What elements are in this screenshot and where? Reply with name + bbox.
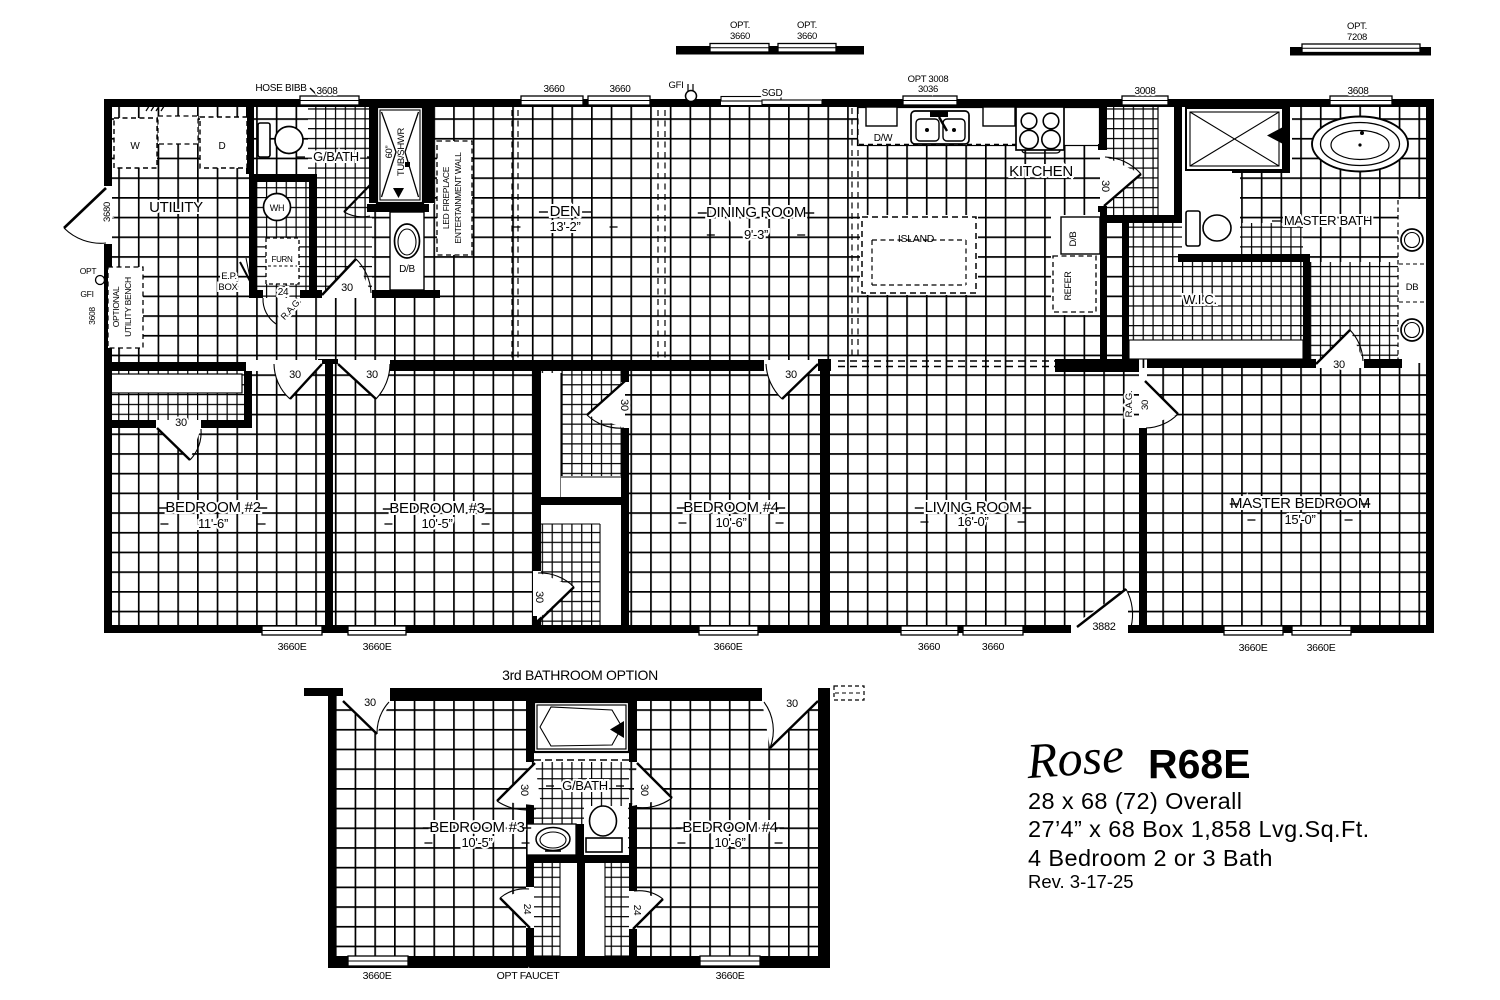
svg-text:3680: 3680 — [102, 202, 113, 222]
svg-text:3660: 3660 — [609, 84, 631, 95]
svg-text:3660: 3660 — [730, 31, 750, 42]
svg-text:G/BATH: G/BATH — [313, 149, 359, 164]
svg-text:3660: 3660 — [918, 641, 941, 653]
svg-text:BEDROOM #3: BEDROOM #3 — [429, 819, 524, 836]
svg-text:GFI: GFI — [669, 80, 684, 91]
svg-text:MASTER BEDROOM: MASTER BEDROOM — [1230, 495, 1370, 512]
svg-text:BEDROOM #4: BEDROOM #4 — [682, 819, 777, 836]
svg-text:30: 30 — [175, 417, 187, 429]
svg-text:3608: 3608 — [1347, 86, 1369, 97]
svg-text:OPTIONAL: OPTIONAL — [111, 286, 121, 327]
svg-text:30: 30 — [786, 698, 798, 710]
svg-text:OPT.: OPT. — [1347, 21, 1367, 32]
svg-text:3660E: 3660E — [363, 641, 392, 653]
svg-text:15'-0”: 15'-0” — [1284, 512, 1315, 527]
svg-text:R.A.G.: R.A.G. — [1124, 391, 1135, 418]
svg-text:W.I.C.: W.I.C. — [1183, 292, 1217, 307]
svg-text:30: 30 — [1140, 400, 1151, 410]
svg-text:3660E: 3660E — [363, 970, 392, 982]
svg-text:REFER: REFER — [1063, 271, 1073, 301]
svg-text:3660: 3660 — [797, 31, 817, 42]
svg-text:MASTER BATH: MASTER BATH — [1284, 213, 1372, 228]
svg-text:TUB/SHWR: TUB/SHWR — [396, 127, 407, 176]
svg-text:D/W: D/W — [874, 133, 893, 144]
svg-text:BOX: BOX — [218, 282, 238, 293]
svg-text:3660E: 3660E — [714, 641, 743, 653]
svg-text:3rd BATHROOM OPTION: 3rd BATHROOM OPTION — [502, 667, 658, 683]
svg-text:30: 30 — [785, 369, 797, 381]
svg-text:30: 30 — [533, 591, 545, 603]
svg-text:3660E: 3660E — [716, 970, 745, 982]
svg-text:Rev. 3-17-25: Rev. 3-17-25 — [1028, 871, 1134, 892]
svg-text:24: 24 — [278, 287, 289, 298]
svg-text:R68E: R68E — [1148, 741, 1251, 787]
svg-text:3660E: 3660E — [1307, 642, 1336, 654]
svg-text:7208: 7208 — [1347, 32, 1367, 43]
svg-text:30: 30 — [364, 697, 376, 709]
svg-text:60”: 60” — [384, 145, 395, 158]
svg-text:BEDROOM #3: BEDROOM #3 — [389, 500, 484, 517]
svg-text:KITCHEN: KITCHEN — [1009, 163, 1073, 180]
svg-text:3882: 3882 — [1092, 621, 1115, 633]
svg-text:4 Bedroom 2 or 3 Bath: 4 Bedroom 2 or 3 Bath — [1028, 845, 1273, 871]
svg-text:3608: 3608 — [316, 86, 338, 97]
svg-text:BEDROOM #4: BEDROOM #4 — [683, 499, 778, 516]
svg-text:DEN: DEN — [550, 203, 581, 220]
svg-text:30: 30 — [618, 399, 630, 411]
svg-text:W: W — [130, 141, 140, 152]
svg-text:DB: DB — [1406, 282, 1419, 293]
svg-text:30: 30 — [1333, 359, 1345, 371]
svg-text:GFI: GFI — [80, 289, 93, 299]
svg-text:Rose: Rose — [1024, 726, 1126, 789]
svg-text:30: 30 — [366, 369, 378, 381]
svg-text:UTILITY: UTILITY — [149, 199, 203, 216]
svg-text:13'-2”: 13'-2” — [549, 219, 580, 234]
svg-text:28 x 68 (72) Overall: 28 x 68 (72) Overall — [1028, 788, 1242, 814]
svg-text:9'-3”: 9'-3” — [744, 227, 768, 242]
svg-text:ISLAND: ISLAND — [898, 233, 935, 245]
svg-text:SGD: SGD — [762, 88, 783, 99]
svg-text:3660: 3660 — [543, 84, 565, 95]
svg-text:3608: 3608 — [87, 307, 97, 325]
svg-text:30: 30 — [1099, 180, 1111, 192]
svg-text:30: 30 — [518, 784, 530, 796]
svg-text:D/B: D/B — [399, 264, 415, 275]
svg-text:30: 30 — [638, 784, 650, 796]
svg-text:ENTERTAINMENT WALL: ENTERTAINMENT WALL — [453, 152, 463, 244]
svg-text:3008: 3008 — [1134, 86, 1156, 97]
svg-text:OPT: OPT — [80, 266, 97, 276]
svg-text:G/BATH: G/BATH — [562, 778, 608, 793]
svg-text:30: 30 — [341, 282, 353, 294]
svg-text:OPT FAUCET: OPT FAUCET — [497, 970, 561, 982]
svg-text:OPT.: OPT. — [797, 20, 817, 31]
svg-text:OPT.: OPT. — [730, 20, 750, 31]
svg-text:3660E: 3660E — [1239, 642, 1268, 654]
svg-text:11'-6”: 11'-6” — [198, 516, 228, 531]
svg-text:WH: WH — [270, 203, 284, 213]
svg-text:UTILITY BENCH: UTILITY BENCH — [123, 277, 133, 337]
svg-text:24: 24 — [521, 904, 532, 915]
svg-text:E.P.: E.P. — [221, 271, 237, 282]
svg-text:30: 30 — [289, 369, 301, 381]
svg-text:16'-0”: 16'-0” — [957, 514, 988, 529]
svg-text:3660E: 3660E — [278, 641, 307, 653]
svg-text:10'-6”: 10'-6” — [714, 835, 745, 850]
svg-text:FURN: FURN — [271, 255, 293, 264]
svg-text:DINING ROOM: DINING ROOM — [706, 204, 806, 221]
svg-text:3036: 3036 — [918, 84, 938, 95]
svg-text:3660: 3660 — [982, 641, 1005, 653]
svg-text:LED FIREPLACE: LED FIREPLACE — [441, 166, 451, 229]
svg-text:D: D — [219, 141, 226, 152]
svg-text:10'-6”: 10'-6” — [715, 515, 746, 530]
svg-text:24: 24 — [631, 905, 642, 916]
svg-text:D/B: D/B — [1068, 232, 1079, 247]
svg-text:10'-5”: 10'-5” — [421, 516, 452, 531]
svg-text:27’4” x 68 Box 1,858 Lvg.Sq.F: 27’4” x 68 Box 1,858 Lvg.Sq.Ft. — [1028, 816, 1370, 842]
svg-text:HOSE BIBB: HOSE BIBB — [255, 83, 307, 94]
svg-text:BEDROOM #2: BEDROOM #2 — [165, 499, 260, 516]
svg-text:10'-5”: 10'-5” — [461, 835, 492, 850]
